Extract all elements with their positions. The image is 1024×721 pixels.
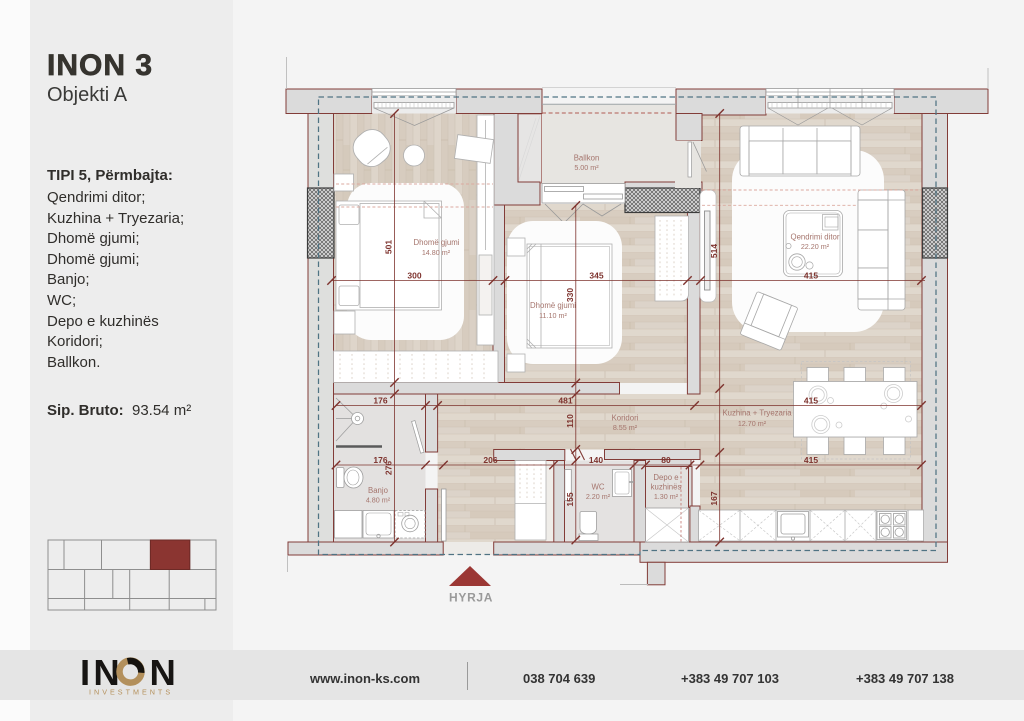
svg-text:Depo e: Depo e (653, 473, 678, 482)
svg-text:206: 206 (483, 455, 497, 465)
svg-text:80: 80 (661, 455, 671, 465)
svg-text:4.80 m²: 4.80 m² (366, 496, 391, 505)
svg-text:1.30 m²: 1.30 m² (654, 492, 679, 501)
svg-text:HYRJA: HYRJA (449, 591, 493, 605)
svg-text:INVESTMENTS: INVESTMENTS (89, 688, 173, 697)
svg-text:514: 514 (709, 244, 719, 258)
svg-text:330: 330 (565, 288, 575, 302)
svg-text:11.10 m²: 11.10 m² (539, 311, 567, 320)
svg-text:Kuzhina + Tryezaria: Kuzhina + Tryezaria (722, 409, 792, 418)
svg-text:WC: WC (592, 483, 605, 492)
svg-text:300: 300 (407, 270, 421, 280)
svg-text:501: 501 (384, 240, 394, 254)
svg-text:140: 140 (589, 455, 603, 465)
svg-text:14.80 m²: 14.80 m² (422, 248, 451, 257)
svg-text:110: 110 (565, 414, 575, 428)
svg-text:2.20 m²: 2.20 m² (586, 492, 611, 501)
svg-text:5.00 m²: 5.00 m² (574, 163, 599, 172)
svg-text:176: 176 (373, 396, 387, 406)
svg-text:Dhomë gjumi: Dhomë gjumi (530, 301, 576, 310)
svg-text:Ballkon: Ballkon (574, 154, 600, 163)
svg-text:Koridori: Koridori (612, 414, 639, 423)
svg-text:415: 415 (804, 396, 818, 406)
svg-text:415: 415 (804, 270, 818, 280)
svg-text:345: 345 (589, 270, 603, 280)
svg-text:kuzhinës: kuzhinës (651, 483, 682, 492)
svg-text:22.20 m²: 22.20 m² (801, 242, 830, 251)
svg-text:Banjo: Banjo (368, 486, 389, 495)
svg-text:Qendrimi ditor: Qendrimi ditor (791, 233, 840, 242)
svg-text:12.70 m²: 12.70 m² (738, 419, 767, 428)
svg-text:167: 167 (709, 491, 719, 505)
svg-text:415: 415 (804, 455, 818, 465)
svg-text:Dhomë gjumi: Dhomë gjumi (414, 238, 460, 247)
svg-text:155: 155 (565, 492, 575, 506)
svg-text:8.55 m²: 8.55 m² (613, 423, 638, 432)
svg-text:276: 276 (384, 461, 394, 475)
svg-text:481: 481 (558, 396, 572, 406)
